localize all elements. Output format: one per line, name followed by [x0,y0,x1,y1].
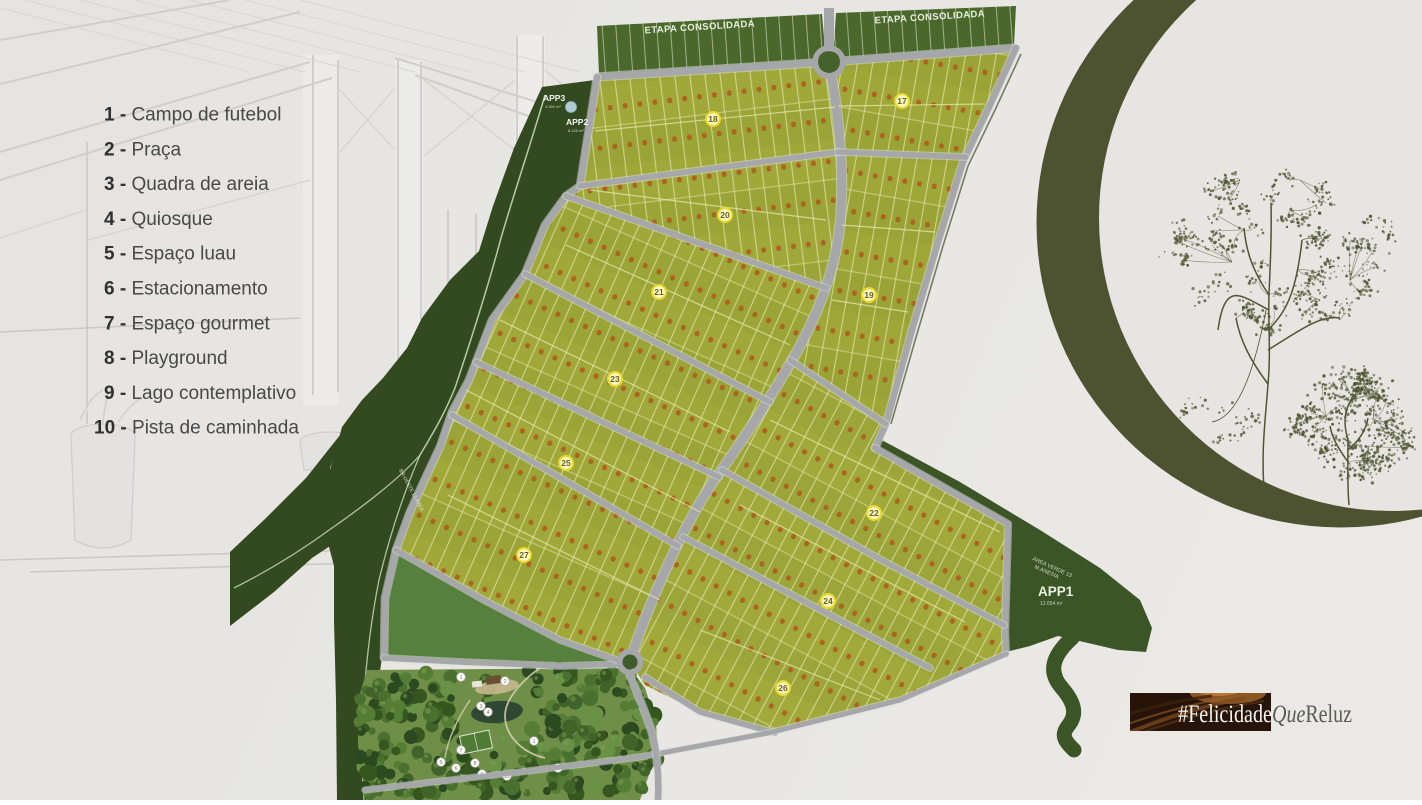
svg-text:25: 25 [561,458,571,468]
svg-text:4 - Quiosque: 4 - Quiosque [104,209,213,230]
svg-text:3: 3 [479,704,482,710]
svg-text:8.120 m²: 8.120 m² [568,128,584,133]
svg-text:8 - Playground: 8 - Playground [104,348,228,369]
svg-text:6 - Estacionamento: 6 - Estacionamento [104,279,268,300]
svg-text:APP1: APP1 [1038,584,1074,599]
svg-text:#Felicidade: #Felicidade [1178,701,1272,728]
svg-text:20: 20 [720,210,730,220]
svg-text:10 - Pista de caminhada: 10 - Pista de caminhada [94,418,299,439]
svg-text:17: 17 [897,96,907,106]
svg-text:26: 26 [778,683,788,693]
svg-text:8: 8 [473,761,476,767]
svg-text:QueReluz: QueReluz [1272,701,1352,728]
svg-text:23: 23 [610,374,620,384]
svg-text:4.260 m²: 4.260 m² [545,104,561,109]
svg-text:22: 22 [869,508,879,518]
svg-text:6: 6 [454,766,457,772]
svg-text:1 - Campo de futebol: 1 - Campo de futebol [104,105,281,126]
svg-text:2 - Praça: 2 - Praça [104,139,182,160]
svg-text:9 - Lago contemplativo: 9 - Lago contemplativo [104,383,296,404]
svg-text:APP3: APP3 [543,93,565,103]
svg-text:12.654 m²: 12.654 m² [1040,601,1063,607]
svg-text:4: 4 [486,710,489,716]
svg-text:1: 1 [532,739,535,745]
svg-text:5 - Espaço luau: 5 - Espaço luau [104,244,236,265]
svg-text:3 - Quadra de areia: 3 - Quadra de areia [104,174,269,195]
svg-text:5: 5 [439,760,442,766]
svg-text:1: 1 [459,675,462,681]
svg-text:19: 19 [864,290,874,300]
svg-text:18: 18 [708,114,718,124]
svg-text:7: 7 [459,748,462,754]
svg-text:24: 24 [823,596,833,606]
svg-text:2: 2 [503,679,506,685]
svg-text:APP2: APP2 [566,117,588,127]
svg-text:27: 27 [519,550,529,560]
svg-text:7 - Espaço gourmet: 7 - Espaço gourmet [104,313,271,334]
svg-text:21: 21 [654,287,664,297]
